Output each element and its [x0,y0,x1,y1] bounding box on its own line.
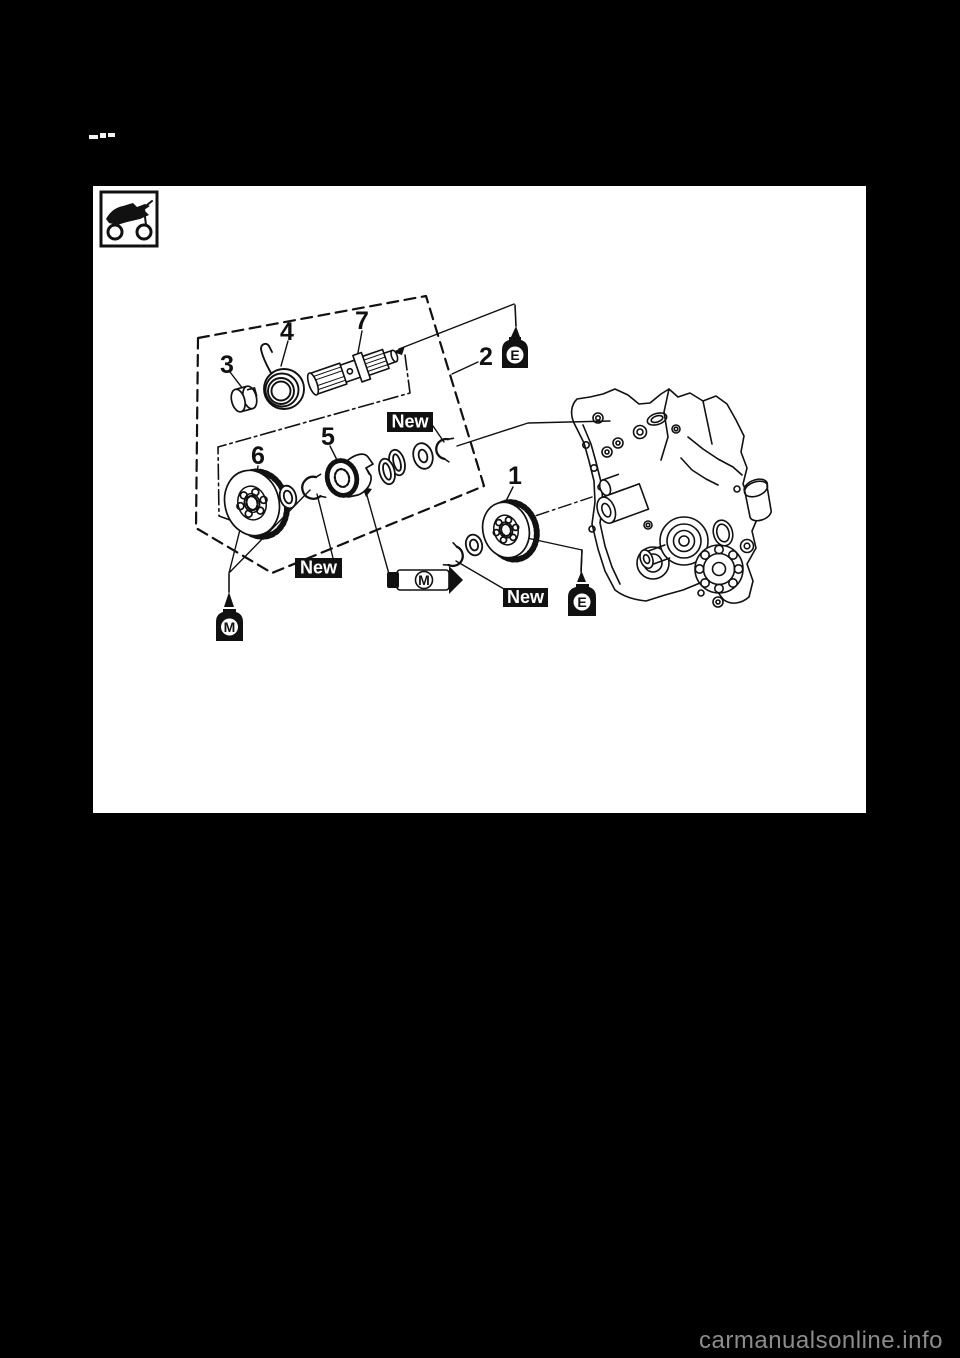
scan-artifact [89,135,98,139]
part-kick-axle [305,342,402,399]
part-washer [464,533,485,557]
svg-text:New: New [391,412,429,432]
molybdenum-grease-tube: M [387,566,463,594]
engine-oil-symbol: E [568,550,596,616]
new-badge: New [295,558,342,579]
molybdenum-oil-symbol: M [216,574,243,641]
new-badge: New [503,587,548,607]
callout-7: 7 [355,307,369,335]
callout-4: 4 [280,318,294,346]
scan-artifact [108,133,115,137]
callout-3: 3 [220,351,234,379]
svg-text:M: M [224,619,236,635]
part-torsion-spring [261,344,304,409]
part-circlip [434,435,454,462]
engine-oil-symbol: E [502,305,528,368]
manual-page: New New New E M M E 1 2 3 4 [93,186,866,813]
part-washer [410,441,435,471]
callout-6: 6 [251,442,265,470]
watermark-text: carmanualsonline.info [699,1327,943,1355]
svg-text:E: E [510,347,519,363]
motorcycle-icon [101,192,157,246]
svg-text:M: M [418,572,430,588]
part-kick-idle-gear [477,495,544,566]
part-collar [229,385,260,414]
svg-text:E: E [577,594,586,610]
callout-1: 1 [508,462,522,490]
svg-text:New: New [507,587,545,607]
part-circlip [443,543,467,571]
callout-5: 5 [321,423,335,451]
callout-2: 2 [479,343,493,371]
exploded-diagram: New New New E M M E 1 2 3 4 [93,186,866,813]
scan-artifact [100,133,106,138]
new-badge: New [387,412,433,433]
svg-text:New: New [300,558,338,578]
part-spring-washers [375,448,409,486]
